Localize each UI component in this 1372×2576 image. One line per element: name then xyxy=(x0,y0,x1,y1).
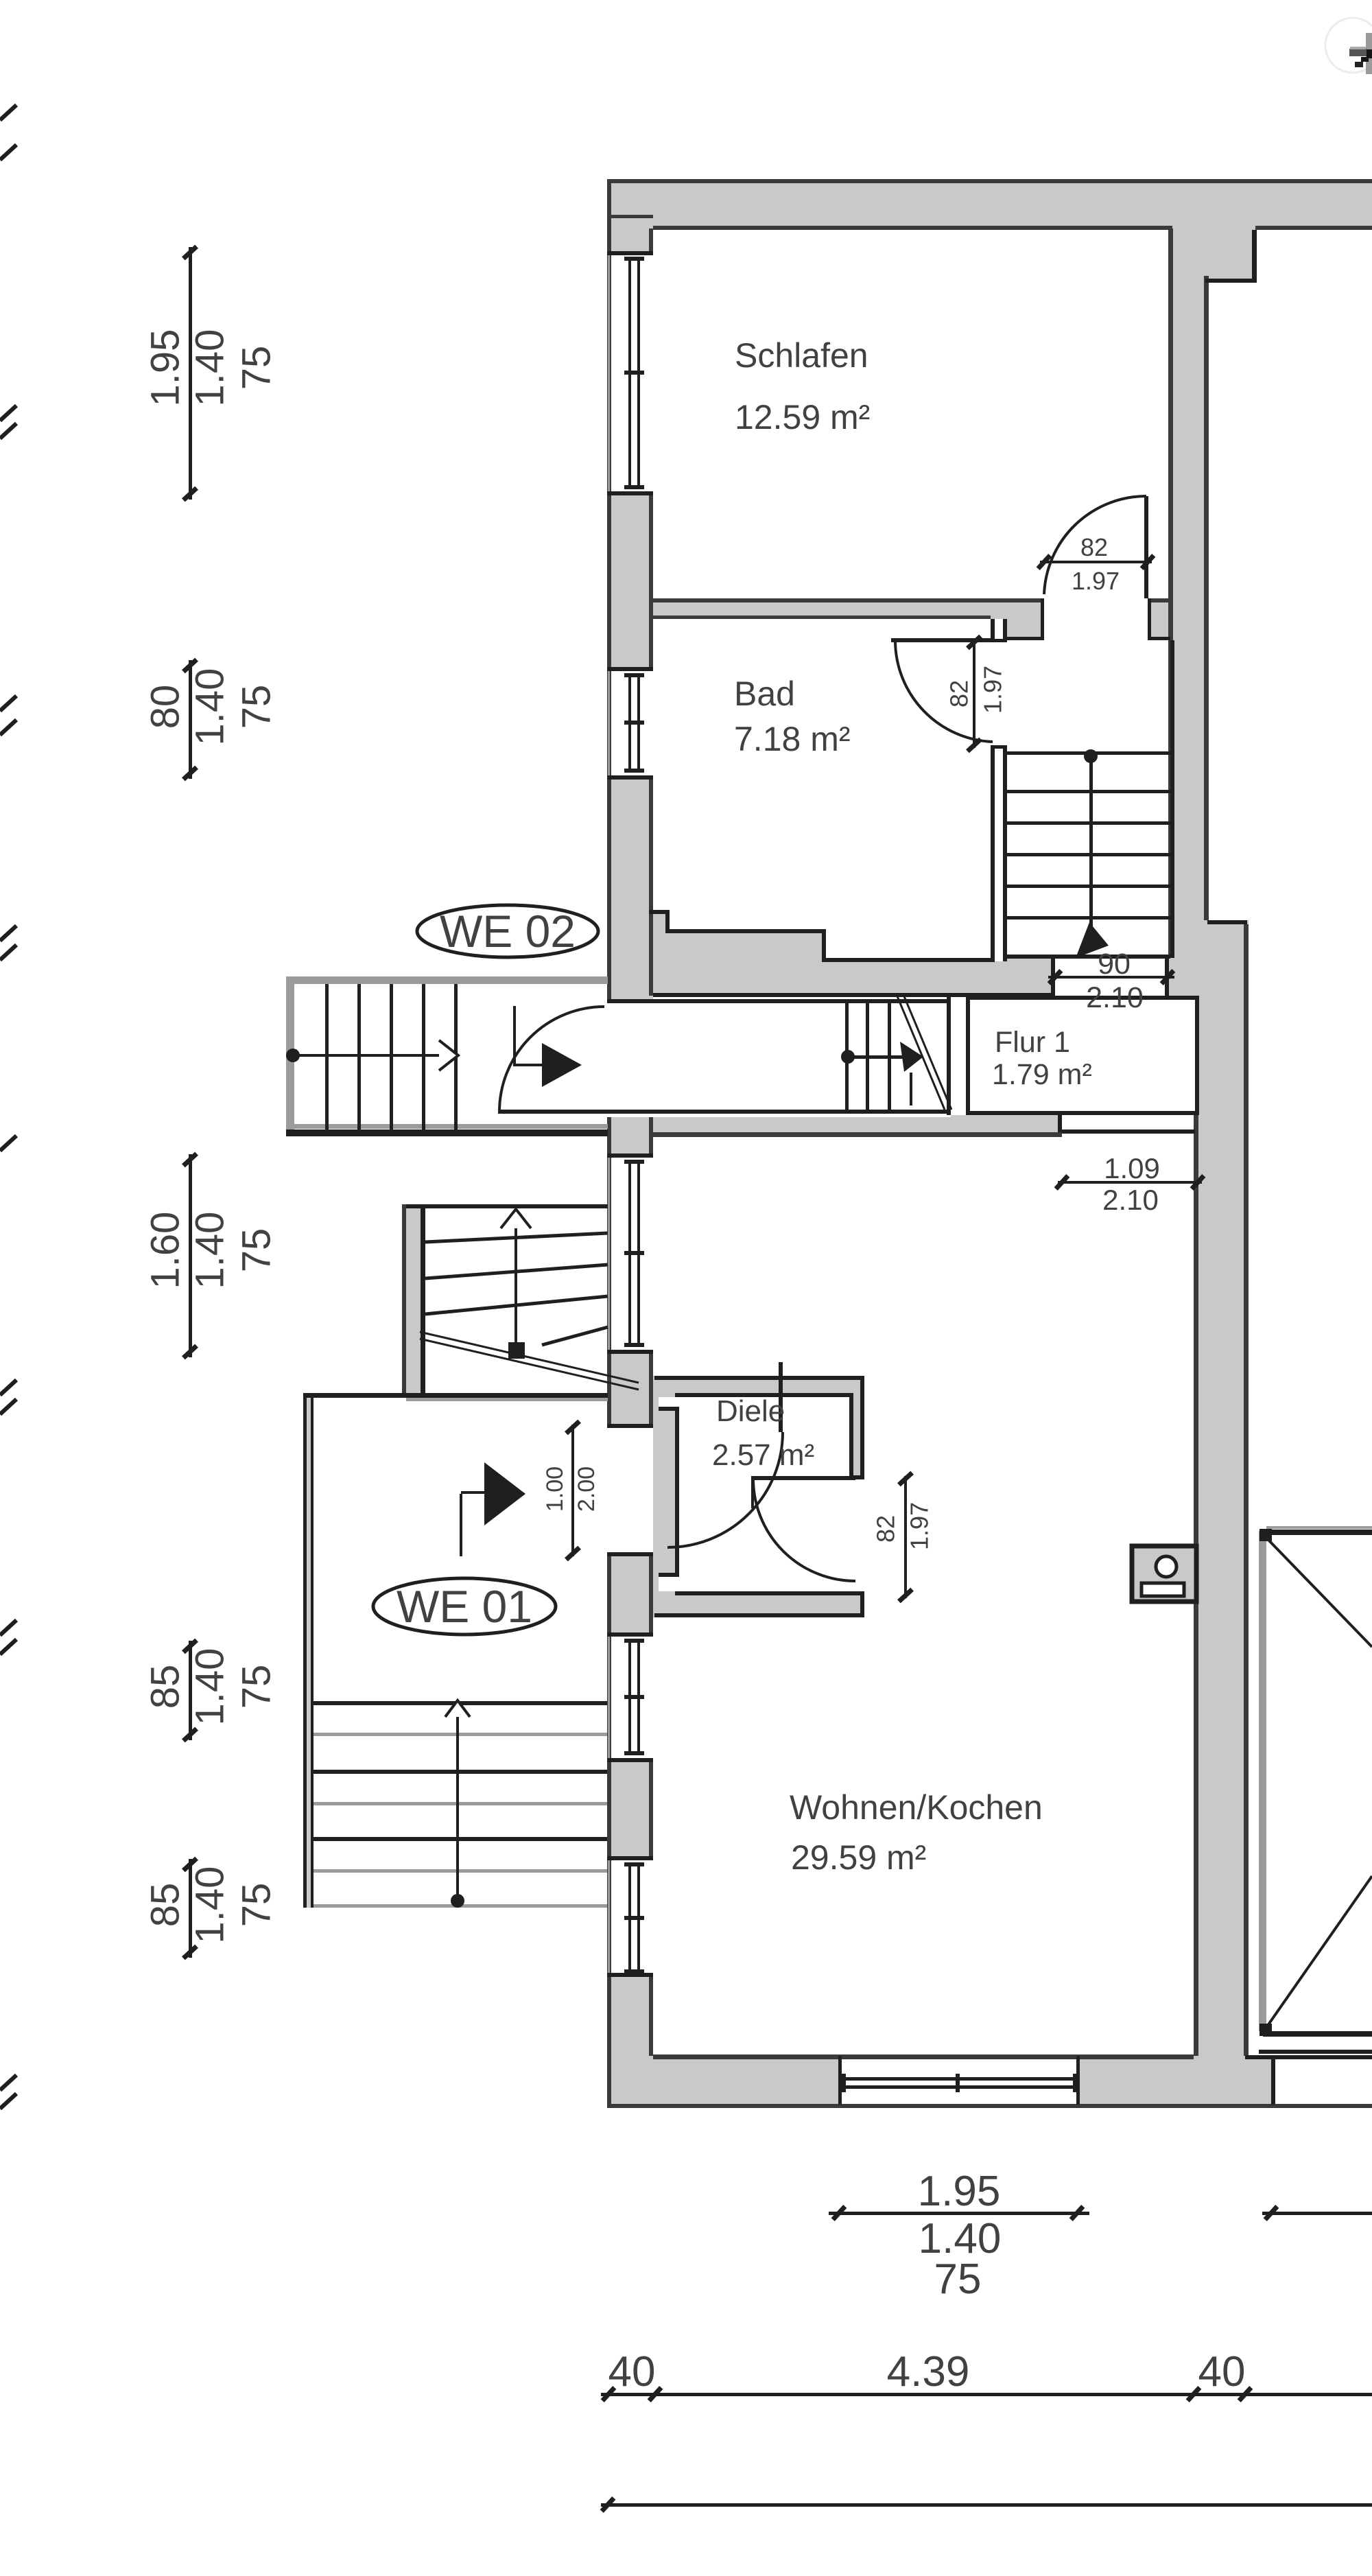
svg-text:75: 75 xyxy=(235,685,279,729)
svg-text:WE 02: WE 02 xyxy=(440,906,576,957)
svg-text:1.95: 1.95 xyxy=(143,329,188,407)
svg-text:1.40: 1.40 xyxy=(188,668,233,746)
svg-text:Wohnen/Kochen: Wohnen/Kochen xyxy=(790,1788,1043,1827)
svg-text:Bad: Bad xyxy=(734,675,795,713)
svg-text:Diele: Diele xyxy=(716,1394,785,1428)
svg-text:Flur 1: Flur 1 xyxy=(995,1026,1070,1059)
svg-text:1.40: 1.40 xyxy=(188,1866,233,1944)
svg-text:90: 90 xyxy=(1098,948,1131,981)
svg-text:75: 75 xyxy=(235,346,279,390)
svg-text:75: 75 xyxy=(235,1228,279,1273)
svg-text:4.39: 4.39 xyxy=(887,2348,970,2396)
svg-text:85: 85 xyxy=(143,1665,188,1709)
svg-text:1.40: 1.40 xyxy=(188,1212,233,1289)
svg-text:2.57 m²: 2.57 m² xyxy=(712,1438,814,1472)
svg-text:75: 75 xyxy=(235,1883,279,1928)
svg-text:1.40: 1.40 xyxy=(188,329,233,407)
svg-text:40: 40 xyxy=(608,2348,656,2396)
svg-text:1.97: 1.97 xyxy=(906,1502,934,1550)
svg-text:Schlafen: Schlafen xyxy=(735,336,868,375)
svg-text:1.09: 1.09 xyxy=(1104,1152,1160,1184)
svg-text:1.95: 1.95 xyxy=(918,2168,1001,2215)
svg-text:WE 01: WE 01 xyxy=(397,1581,532,1632)
svg-text:2.10: 2.10 xyxy=(1086,981,1144,1014)
svg-text:1.97: 1.97 xyxy=(1072,567,1120,595)
svg-text:1.97: 1.97 xyxy=(979,666,1007,714)
svg-text:1.60: 1.60 xyxy=(143,1212,188,1289)
svg-text:80: 80 xyxy=(143,685,188,729)
svg-text:7.18 m²: 7.18 m² xyxy=(734,720,851,758)
svg-text:75: 75 xyxy=(934,2256,982,2303)
svg-text:82: 82 xyxy=(1080,533,1108,561)
svg-text:2.00: 2.00 xyxy=(573,1466,600,1512)
svg-text:1.00: 1.00 xyxy=(542,1466,568,1512)
svg-text:12.59 m²: 12.59 m² xyxy=(735,398,870,436)
svg-text:40: 40 xyxy=(1198,2348,1246,2396)
svg-text:75: 75 xyxy=(235,1665,279,1709)
svg-text:85: 85 xyxy=(143,1883,188,1928)
svg-text:2.10: 2.10 xyxy=(1102,1184,1159,1216)
svg-text:82: 82 xyxy=(872,1515,900,1543)
svg-text:29.59 m²: 29.59 m² xyxy=(791,1838,926,1877)
svg-text:82: 82 xyxy=(945,680,973,707)
svg-text:1.79 m²: 1.79 m² xyxy=(992,1058,1092,1091)
svg-text:1.40: 1.40 xyxy=(188,1648,233,1726)
